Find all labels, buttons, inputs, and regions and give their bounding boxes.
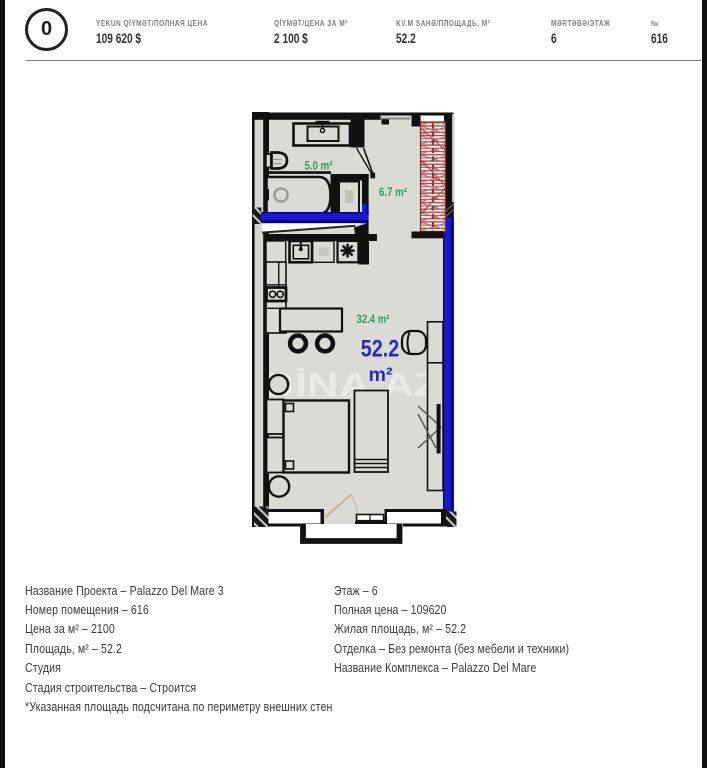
svg-text:m²: m² (369, 364, 393, 386)
svg-text:BİNA.AZ: BİNA.AZ (263, 366, 441, 403)
svg-text:6.7 m²: 6.7 m² (379, 185, 407, 199)
svg-text:52.2: 52.2 (361, 336, 400, 363)
svg-text:5.0 m²: 5.0 m² (305, 159, 333, 173)
svg-text:32.4 m²: 32.4 m² (357, 312, 390, 326)
